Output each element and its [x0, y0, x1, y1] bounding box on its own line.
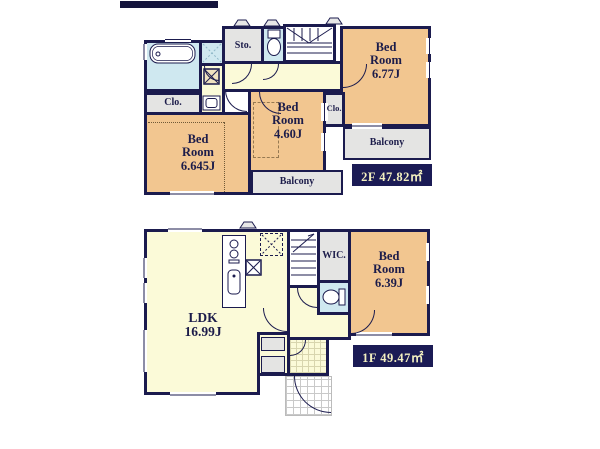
- balcony-bottom-2f: [251, 170, 343, 195]
- window: [170, 191, 214, 197]
- refrigerator-space: [260, 233, 283, 256]
- vent-icon: [325, 17, 343, 25]
- window: [321, 103, 328, 121]
- window: [426, 286, 433, 304]
- floor2-area-badge: 2F 47.82㎡: [352, 164, 432, 186]
- stove-icon: [226, 238, 242, 264]
- ldk-seam-patch: [147, 332, 257, 340]
- closet-dotted-line-h: [148, 122, 224, 123]
- toilet-icon-1f: [321, 286, 347, 308]
- window: [356, 332, 392, 338]
- window: [141, 44, 147, 60]
- floor1-area-text: 1F 49.47㎡: [362, 347, 424, 366]
- bathtub-icon: [149, 43, 197, 65]
- stairs-2f: [283, 24, 336, 63]
- wic-1f: [317, 229, 351, 283]
- floor1-area-badge: 1F 49.47㎡: [353, 345, 433, 367]
- washbasin-icon-2f: [202, 95, 221, 111]
- window: [352, 123, 382, 129]
- window: [426, 243, 433, 261]
- window: [321, 133, 328, 151]
- shoe-cabinet: [261, 356, 285, 373]
- door-arc: [225, 90, 247, 112]
- floor-plan-canvas: Bed Room 6.77J Bed Room 4.60J Bed Room 6…: [0, 0, 600, 449]
- washing-machine-icon-1f: [245, 259, 262, 276]
- vent-icon: [239, 221, 257, 229]
- vent-icon: [263, 19, 281, 27]
- window: [426, 62, 433, 78]
- window: [165, 37, 191, 42]
- shoe-cabinet: [261, 337, 285, 351]
- window: [141, 330, 147, 372]
- window: [426, 38, 433, 54]
- closet-dotted-line-v: [224, 122, 225, 192]
- window: [141, 258, 147, 278]
- vent-icon: [233, 19, 251, 27]
- toilet-icon-2f: [265, 29, 283, 59]
- balcony-right-2f: [343, 127, 431, 160]
- redacted-title-bar: [120, 1, 218, 8]
- ldk-lower-1f: [144, 335, 260, 395]
- kitchen-sink-icon: [226, 268, 242, 296]
- window: [141, 283, 147, 303]
- window: [170, 392, 216, 398]
- storage-room-2f: [222, 26, 264, 64]
- window: [168, 226, 202, 232]
- stairs-1f: [287, 229, 320, 288]
- bedroom-6645-2f: [144, 112, 251, 195]
- floor2-area-text: 2F 47.82㎡: [361, 166, 423, 185]
